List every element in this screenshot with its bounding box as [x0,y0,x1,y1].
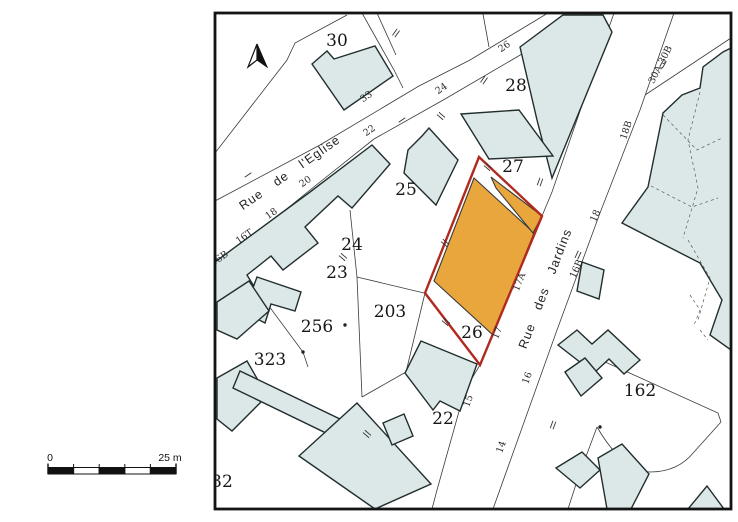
parcel-label-27: 27 [502,157,524,177]
boundary-line [357,277,424,293]
tick-mark [537,178,543,187]
boundary-point [343,323,346,326]
house-number-18B: 18B [618,119,634,141]
scale-max-label: 25 m [158,452,182,464]
parcel-label-26: 26 [461,323,483,343]
building [312,46,393,110]
parcel-label-24: 24 [341,235,363,255]
tick-mark [245,173,252,178]
parcel-label-162: 162 [624,381,656,401]
tick-mark [392,29,399,37]
boundary-point [301,350,304,353]
parcel-label-323: 323 [254,350,286,370]
house-number-20: 20 [297,174,313,190]
house-number-14: 14 [494,440,508,455]
tick-mark [437,112,445,119]
house-number-22: 22 [361,123,377,139]
parcel-label-22: 22 [432,409,454,429]
map-area: 30 28 27 25 24 23 256 323 203 26 22 162 … [209,13,731,509]
building [598,444,649,509]
house-number-16-jardins: 16 [520,371,534,386]
tick-mark [480,76,487,84]
tick-mark [575,251,581,260]
house-number-26: 26 [496,39,512,55]
house-number-24: 24 [433,81,449,97]
parcel-label-25: 25 [395,180,417,200]
parcel-label-23: 23 [326,263,348,283]
building-complex [622,48,731,350]
cadastral-map: 0 25 m [0,0,738,522]
building [558,330,640,374]
tick-mark [550,421,556,430]
scale-bar-segments [48,464,176,475]
scale-zero-label: 0 [47,452,53,464]
map-canvas: 0 25 m [0,0,738,522]
boundary-line [483,14,489,47]
parcel-label-28: 28 [505,76,527,96]
north-arrow-icon [248,44,267,67]
scale-bar: 0 25 m [47,452,182,474]
boundary-point [598,425,601,428]
building [556,452,600,488]
parcel-label-256: 256 [301,317,333,337]
boundary-line [362,372,406,397]
parcel-label-30: 30 [326,31,348,51]
parcel-label-203: 203 [374,302,406,322]
building [688,486,724,509]
